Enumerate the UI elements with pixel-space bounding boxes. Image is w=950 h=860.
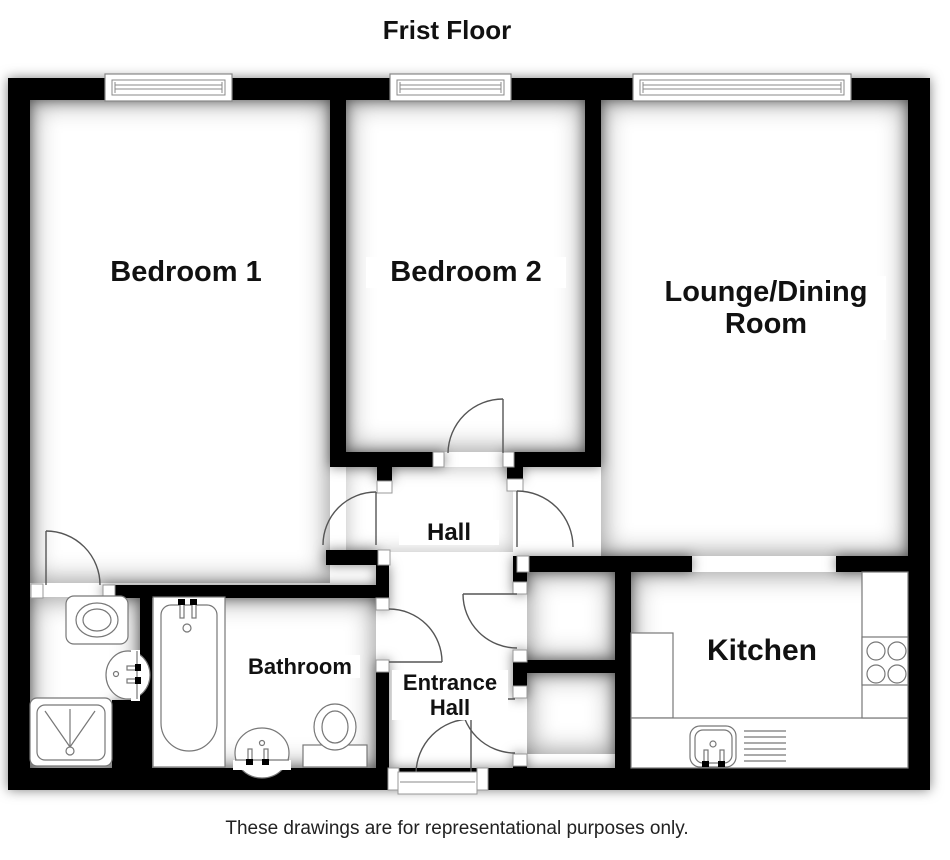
room-label-bedroom2: Bedroom 2	[366, 257, 566, 288]
window-bedroom1-icon	[105, 74, 232, 101]
wall-bathroom-north	[103, 585, 376, 598]
outer-wall-left	[8, 78, 30, 790]
wall-hall-south-west	[326, 550, 378, 565]
room-label-bedroom1: Bedroom 1	[86, 257, 286, 288]
bathroom-toilet-icon	[303, 704, 367, 767]
room-label-entrance-hall: Entrance Hall	[392, 670, 508, 720]
hall-stub-left	[377, 467, 392, 481]
floor-plan-svg	[0, 0, 950, 860]
wall-bedroom2-lounge	[585, 100, 601, 467]
windows-group	[105, 74, 851, 101]
door-ensuite-icon	[46, 531, 100, 585]
hall-stub-right	[507, 467, 523, 479]
room-label-lounge: Lounge/Dining Room	[646, 276, 886, 340]
page-title: Frist Floor	[347, 17, 547, 45]
wall-wc-corner-block	[112, 700, 140, 768]
door-hall-west-icon	[323, 492, 376, 545]
front-door-icon	[416, 719, 471, 774]
wall-bedroom2-south-left	[330, 452, 444, 467]
room-label-bathroom: Bathroom	[240, 655, 360, 678]
door-bedroom2-icon	[448, 399, 503, 453]
wall-kitchen-north-right	[836, 556, 908, 572]
wall-bathroom-east-lower	[376, 660, 389, 768]
disclaimer-text: These drawings are for representational …	[107, 818, 807, 840]
wall-kitchen-north-left	[517, 556, 692, 572]
outer-wall-right	[908, 78, 930, 790]
door-hall-east-icon	[517, 491, 573, 547]
front-door-step	[398, 772, 477, 794]
wc-toilet-icon	[66, 596, 128, 644]
wall-cupboard-kitchen	[615, 572, 631, 768]
wall-bedroom1-bedroom2	[330, 100, 346, 452]
shower-tray-icon	[30, 698, 112, 766]
bath-icon	[153, 597, 225, 767]
door-cupboard-a-icon	[463, 594, 517, 648]
room-label-hall: Hall	[399, 520, 499, 545]
window-lounge-icon	[633, 74, 851, 101]
floor-plan-page: Frist Floor Bedroom 1 Bedroom 2 Lounge/D…	[0, 0, 950, 860]
wall-cupboard-divider	[527, 660, 615, 673]
room-label-kitchen: Kitchen	[682, 635, 842, 667]
window-bedroom2-icon	[390, 74, 511, 101]
hob-icon	[862, 637, 908, 685]
door-bathroom-icon	[389, 609, 442, 662]
